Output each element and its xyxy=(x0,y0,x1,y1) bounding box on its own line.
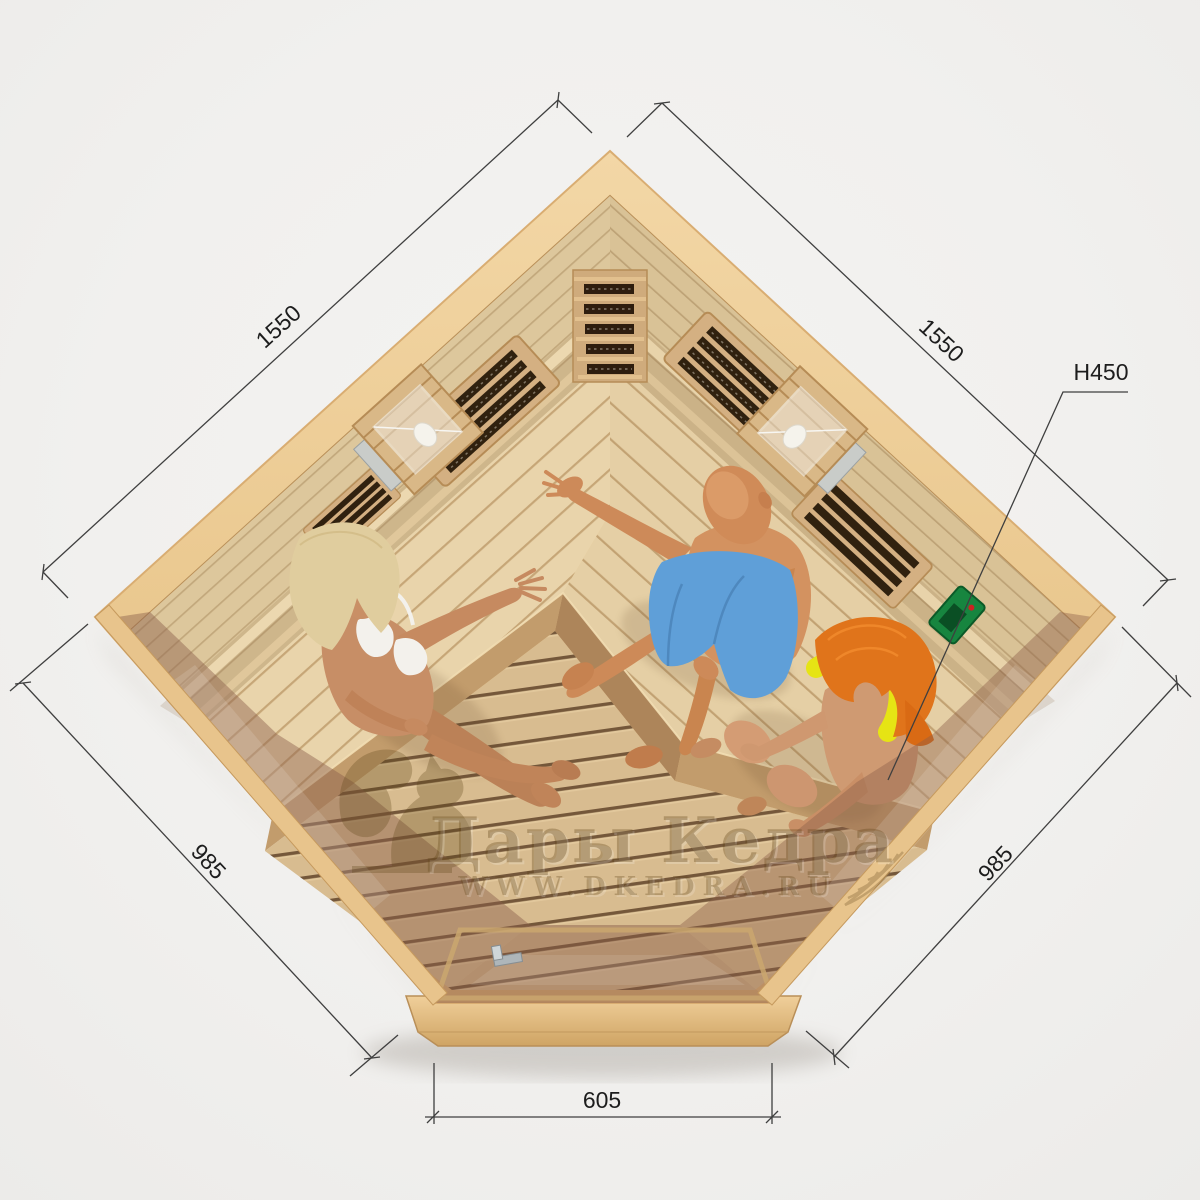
dimension-label: 985 xyxy=(973,840,1018,886)
dimension-label: 605 xyxy=(583,1087,621,1113)
watermark-url: WWW.DKEDRA.RU xyxy=(457,872,837,902)
corner-heater xyxy=(573,270,647,382)
dimension-label: 1550 xyxy=(251,299,306,353)
dimension-label: H450 xyxy=(1074,359,1129,385)
product-render-canvas: Дары Кедра Дары Кедра WWW.DKEDRA.RU WWW.… xyxy=(0,0,1200,1200)
dimension-label: 1550 xyxy=(914,313,969,367)
dimension-label: 985 xyxy=(186,838,231,884)
watermark-title: Дары Кедра xyxy=(425,803,895,877)
sauna-top-view-render: Дары Кедра Дары Кедра WWW.DKEDRA.RU WWW.… xyxy=(0,0,1200,1200)
